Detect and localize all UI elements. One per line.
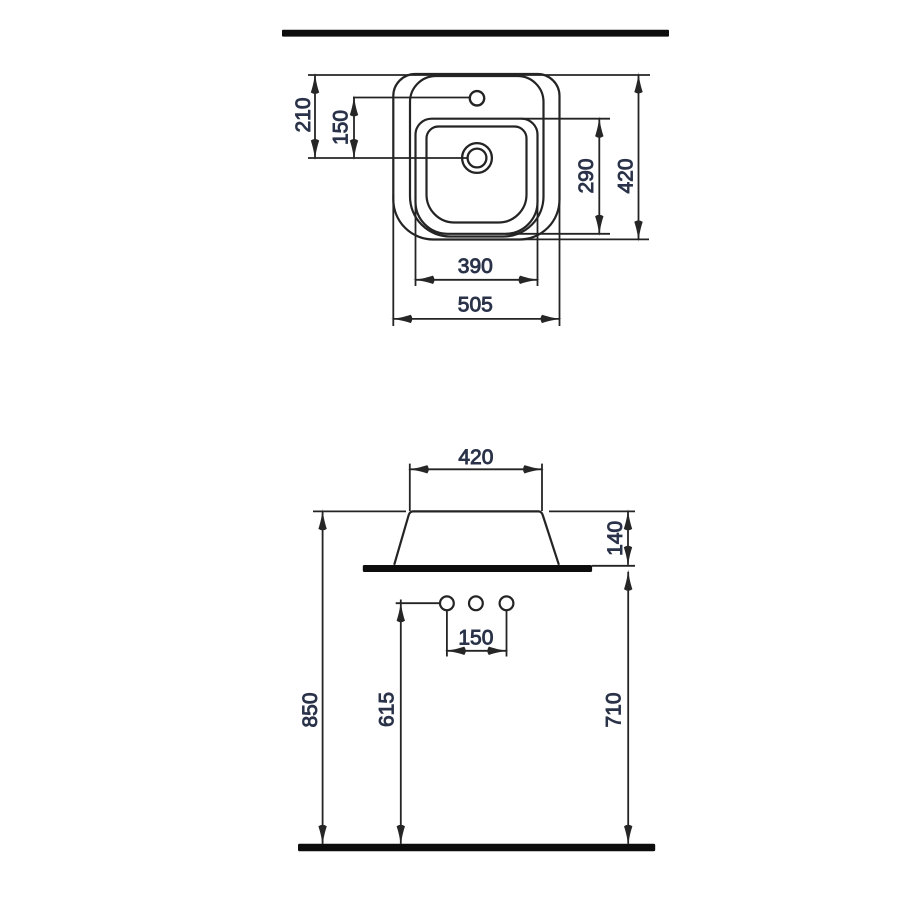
svg-text:140: 140	[604, 521, 627, 556]
svg-text:420: 420	[615, 158, 638, 193]
svg-text:390: 390	[458, 255, 493, 278]
svg-text:505: 505	[458, 294, 493, 317]
svg-text:150: 150	[330, 110, 353, 145]
svg-text:420: 420	[458, 446, 493, 469]
svg-text:210: 210	[292, 97, 315, 132]
svg-text:290: 290	[575, 158, 598, 193]
svg-text:710: 710	[603, 692, 626, 727]
svg-text:850: 850	[299, 692, 322, 727]
svg-text:150: 150	[458, 627, 493, 650]
svg-text:615: 615	[376, 692, 399, 727]
